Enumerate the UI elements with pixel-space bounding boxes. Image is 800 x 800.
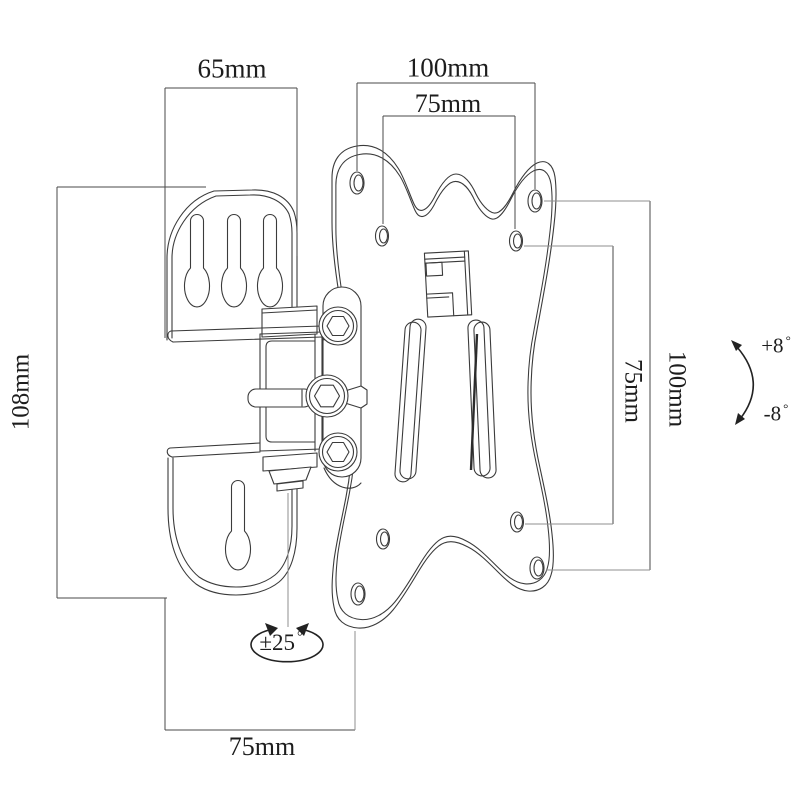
dim-label-bracket-height: 108mm (9, 354, 34, 430)
arrow-up-icon (731, 340, 742, 351)
tilt-arc (737, 347, 753, 419)
hinge-bolt-bottom (319, 433, 357, 471)
lower-keyhole-slot (225, 481, 250, 570)
vesa-plate (332, 145, 556, 628)
dim-65mm (165, 88, 297, 338)
technical-drawing-canvas: 65mm 100mm 75mm 108mm 75mm 100mm 75mm +8… (0, 0, 800, 800)
dim-label-vesa-width-outer: 100mm (407, 55, 490, 82)
swivel-value: ±25 (259, 630, 295, 655)
degree-symbol: ° (297, 629, 303, 645)
wall-bracket-upper (167, 190, 322, 342)
vesa-plate-outline-outer (332, 145, 556, 628)
swivel-nut (263, 453, 317, 491)
dim-108mm-left (57, 187, 206, 598)
wall-keyhole-slots (184, 215, 282, 307)
dim-75mm-bottom (165, 598, 355, 730)
tilt-down-label: -8° (764, 402, 789, 425)
dim-label-vesa-height-outer: 100mm (665, 351, 690, 427)
dim-label-depth-bottom: 75mm (229, 734, 295, 760)
dim-label-vesa-height-inner: 75mm (621, 359, 646, 423)
tilt-up-value: +8 (761, 334, 783, 358)
lower-flange (167, 443, 260, 457)
hinge-bolt-top (319, 307, 357, 345)
degree-symbol: ° (783, 401, 788, 416)
dim-label-vesa-width-inner: 75mm (415, 91, 481, 117)
tilt-down-value: -8 (764, 402, 782, 426)
dim-label-bracket-width: 65mm (197, 56, 266, 83)
tilt-up-label: +8° (761, 334, 791, 357)
swivel-label: ±25° (259, 630, 302, 654)
tilt-angle-annotation (731, 340, 753, 425)
degree-symbol: ° (786, 333, 791, 348)
